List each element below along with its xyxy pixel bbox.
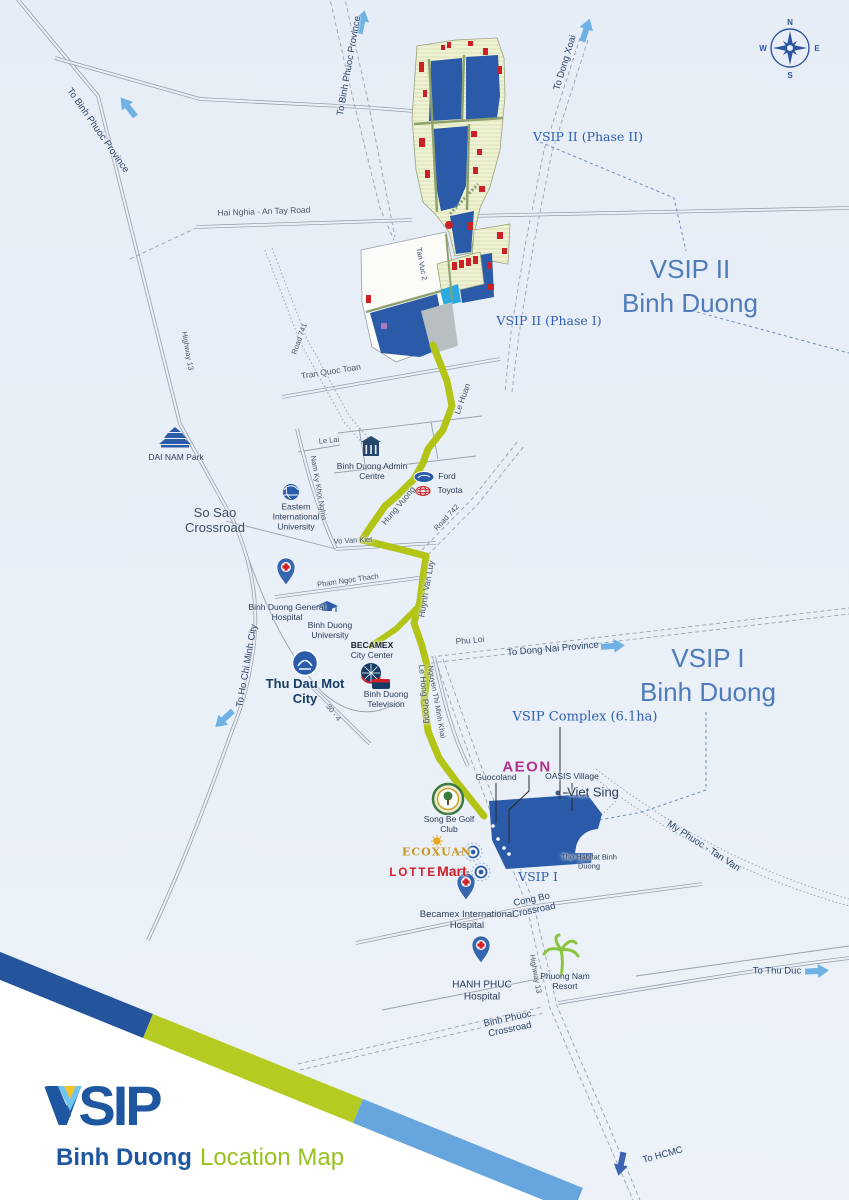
vsip-logo: VSIP Binh DuongLocation Map (44, 1078, 160, 1134)
map-labels: To Binh Phuoc Province To Binh Phuoc Pro… (0, 0, 849, 1200)
road-label-tran-quoc-toan: Tran Quoc Toan (300, 362, 361, 381)
road-label-vo-van-kiet: Vo Van Kiet (333, 536, 372, 547)
road-label-road-742: Road 742 (433, 503, 461, 533)
logo-subtitle-map: Location Map (200, 1144, 344, 1171)
label-binh-phuoc-crossroad: Binh Phuoc Crossroad (472, 1007, 547, 1043)
label-oasis-village: OASIS Village (545, 772, 599, 782)
zone-title-vsip2-line1: VSIP II (622, 253, 758, 287)
label-phuong-nam-resort: Phuong Nam Resort (532, 972, 598, 992)
label-becamex-sub: City Center (351, 651, 394, 661)
label-lotte: LOTTE (389, 867, 437, 879)
zone-title-vsip2-line2: Binh Duong (622, 287, 758, 321)
road-label-to-dong-nai: To Dong Nai Province (507, 641, 599, 660)
label-becamex-hospital: Becamex International Hospital (411, 910, 523, 932)
label-eastern-university: Eastern International University (259, 502, 333, 531)
road-label-tan-vuc-2: Tan Vuc 2 (414, 247, 428, 281)
road-label-to-binh-phuoc-n: To Binh Phuoc Province (336, 15, 364, 116)
road-label-to-dong-xoai: To Dong Xoai (552, 34, 579, 92)
label-lotte-mart: LOTTEMart (389, 863, 466, 881)
road-label-le-huan: Le Huan (453, 382, 473, 416)
zone-label-vsip-complex: VSIP Complex (6.1ha) (513, 711, 658, 726)
label-ecoxuan: ECOXUAN (402, 847, 472, 860)
label-toyota: Toyota (437, 486, 462, 496)
road-label-phu-loi: Phu Loi (455, 635, 485, 647)
road-label-pham-ngoc-thach: Pham Ngoc Thach (317, 572, 380, 589)
zone-label-vsip1: VSIP I (518, 870, 558, 884)
road-label-huynh-van-luy: Huynh Van Luy (417, 560, 437, 618)
label-thu-dau-mot-city: Thu Dau Mot City (253, 677, 357, 707)
label-bd-television: Binh Duong Television (349, 690, 423, 710)
road-label-my-phuoc-tan-van: My Phuoc - Tan Van (665, 819, 742, 874)
label-the-habitat: The Habitat Binh Duong (560, 853, 618, 870)
road-label-road-741: Road 741 (290, 322, 309, 356)
vsip-logo-text: VSIP (44, 1078, 160, 1134)
road-label-to-hcmc: To HCMC (642, 1145, 685, 1166)
zone-label-vsip2-phase1: VSIP II (Phase I) (496, 314, 601, 328)
road-label-to-thu-duc: To Thu Duc (753, 967, 801, 978)
zone-label-vsip2-phase2: VSIP II (Phase II) (533, 130, 643, 144)
road-label-hung-vuong: Hung Vuong (380, 485, 418, 527)
label-hanh-phuc-hospital: HANH PHUC Hospital (442, 980, 522, 1003)
label-song-be-golf: Song Be Golf Club (419, 815, 479, 835)
zone-title-vsip1: VSIP I Binh Duong (640, 642, 776, 710)
logo-subtitle-region: Binh Duong (56, 1144, 192, 1171)
label-admin-centre: Binh Duong Admin Centre (332, 462, 412, 482)
logo-subtitle: Binh DuongLocation Map (56, 1144, 344, 1172)
road-label-hai-nghia: Hai Nghia - An Tay Road (217, 205, 310, 218)
zone-title-vsip2: VSIP II Binh Duong (622, 253, 758, 321)
label-guocoland: Guocoland (475, 773, 516, 783)
label-so-sao-crossroad: So Sao Crossroad (173, 506, 257, 536)
label-mart: Mart (437, 863, 467, 879)
zone-title-vsip1-line2: Binh Duong (640, 676, 776, 710)
label-viet-sing: Viet Sing (567, 786, 619, 801)
label-dai-nam-park: DAI NAM Park (148, 453, 203, 463)
road-label-highway-13-n: Highway 13 (179, 331, 194, 371)
location-map: N E S W (0, 0, 849, 1200)
road-label-le-lai: Le Lai (318, 436, 339, 446)
label-bd-university: Binh Duong University (294, 621, 366, 641)
road-label-to-binh-phuoc-w: To Binh Phuoc Province (64, 87, 131, 176)
label-ford: Ford (438, 472, 455, 482)
zone-title-vsip1-line1: VSIP I (640, 642, 776, 676)
